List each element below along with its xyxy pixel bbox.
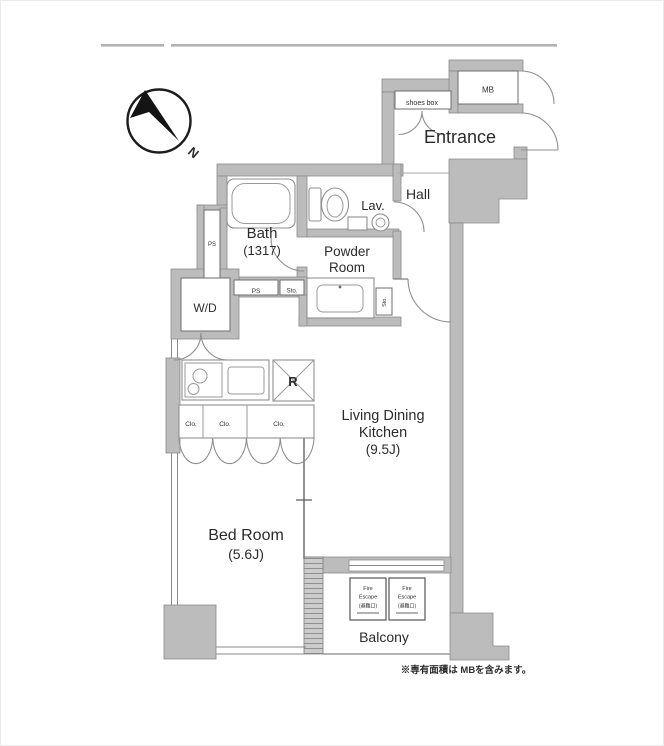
wall-segment [217, 176, 227, 208]
bedroom-size-label: (5.6J) [228, 546, 264, 562]
wall-segment [449, 60, 523, 71]
shoes-box-door-arc [399, 111, 423, 135]
wall-segment [166, 358, 180, 453]
bath-size-label: (1317) [243, 243, 281, 258]
entrance-label: Entrance [424, 127, 496, 147]
powder-room-door-arc [394, 202, 424, 232]
fire-escape-hatches: Fire Escape (避難口) Fire Escape (避難口) [350, 578, 425, 620]
wall-segment [382, 92, 394, 173]
bath-label: Bath [247, 225, 278, 242]
powder-room-label: Powder [324, 244, 370, 259]
ldk-label: Living Dining [341, 408, 424, 424]
wall-segment [393, 164, 401, 201]
vanity-faucet-dot [339, 286, 342, 289]
balcony-label: Balcony [359, 629, 409, 645]
mb-door-arc [521, 71, 554, 104]
wall-hatched-strip [304, 557, 323, 654]
floorplan-canvas: N [1, 1, 664, 746]
entrance-door-arc [521, 113, 558, 150]
lav-counter [348, 217, 367, 230]
wall-segment [382, 79, 451, 92]
floorplan-page: N [0, 0, 664, 746]
powder-room-label: Room [329, 260, 365, 275]
fire-escape-hatch: Fire Escape (避難口) [350, 578, 386, 620]
wall-segment [299, 295, 307, 326]
washer-dryer-label: W/D [193, 301, 217, 315]
fire-escape-hatch: Fire Escape (避難口) [389, 578, 425, 620]
bedroom-label: Bed Room [208, 527, 284, 544]
wall-segment [217, 164, 403, 176]
ldk-size-label: (9.5J) [366, 442, 401, 457]
meter-box-label: MB [482, 86, 494, 95]
wall-ldk-right [450, 223, 463, 613]
closet-label: Clo. [185, 421, 197, 428]
fire-escape-text: Fire [363, 586, 372, 592]
shoes-box-label: shoes box [406, 100, 438, 107]
refrigerator-box: R [273, 360, 314, 401]
wall-step-block-entrance [449, 159, 527, 223]
ps-small-label: PS [252, 288, 261, 295]
refrigerator-label: R [288, 374, 298, 389]
storage-2-label: Sto. [382, 297, 388, 307]
footnote-text: ※専有面積は MBを含みます。 [401, 664, 531, 676]
header-rules [101, 44, 557, 47]
closet-row: Clo. Clo. Clo. [179, 405, 314, 464]
wall-segment [297, 176, 307, 237]
fire-escape-text: Escape [359, 595, 377, 601]
fire-escape-text: (避難口) [398, 603, 417, 610]
fire-escape-text: (避難口) [359, 603, 378, 610]
compass: N [128, 90, 202, 162]
lav-sink-icon [372, 214, 389, 231]
wall-pillar [164, 605, 216, 659]
fire-escape-text: Fire [402, 586, 411, 592]
lav-label: Lav. [361, 198, 385, 213]
hall-label: Hall [406, 186, 430, 202]
storage-1-label: Sto. [287, 289, 298, 295]
header-rule-long [171, 44, 557, 47]
hall-ldk-door-arc [408, 279, 451, 322]
closet-label: Clo. [219, 421, 231, 428]
ps-duct-label: PS [208, 242, 216, 248]
wall-step-block-bottom [450, 613, 509, 660]
fire-escape-text: Escape [398, 595, 416, 601]
closet-label: Clo. [273, 421, 285, 428]
wall-segment [458, 104, 523, 113]
ldk-label: Kitchen [359, 425, 407, 441]
toilet-bowl-icon [322, 188, 349, 221]
header-rule-short [101, 44, 164, 47]
closet-door-arcs [179, 438, 314, 464]
compass-north-label: N [185, 144, 202, 162]
ps-duct-box [204, 210, 220, 289]
toilet-tank-icon [309, 188, 321, 221]
wall-segment [514, 147, 527, 159]
wall-segment [393, 231, 401, 279]
